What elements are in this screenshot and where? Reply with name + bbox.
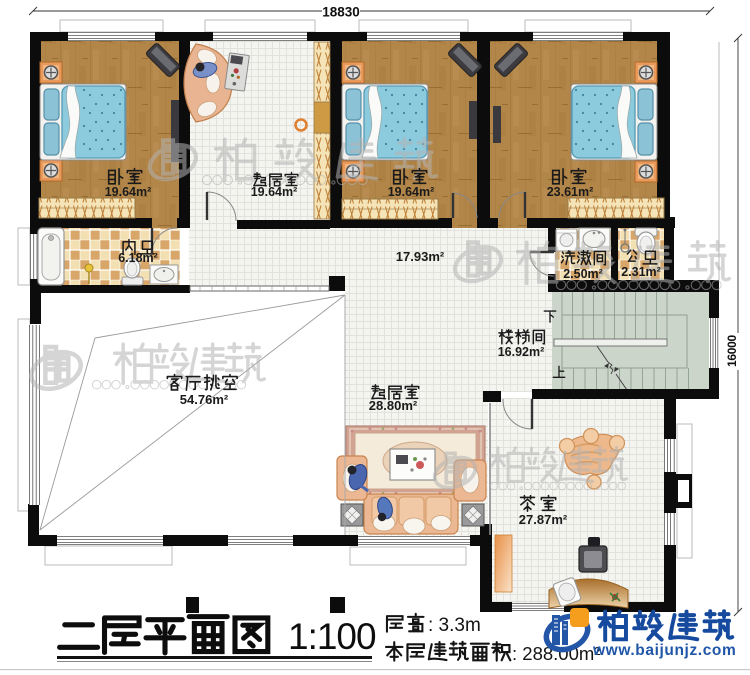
svg-text:16.92m²: 16.92m² [498,345,545,359]
svg-text:17.93m²: 17.93m² [396,249,445,264]
svg-text:19.64m²: 19.64m² [105,185,152,199]
svg-text:19.64m²: 19.64m² [388,185,435,199]
svg-text:www.baijunjz.com: www.baijunjz.com [592,642,736,659]
svg-text:28.80m²: 28.80m² [369,398,418,413]
svg-text:1:100: 1:100 [288,616,376,657]
svg-text:2.31m²: 2.31m² [621,265,661,279]
svg-text:27.87m²: 27.87m² [519,512,568,527]
svg-text:16000: 16000 [725,334,739,366]
svg-text:54.76m²: 54.76m² [180,392,229,407]
svg-text:23.61m²: 23.61m² [547,185,594,199]
svg-text:2.50m²: 2.50m² [563,267,603,281]
svg-text:: 3.3m: : 3.3m [428,615,481,636]
svg-text:18830: 18830 [322,5,360,20]
svg-text:6.18m²: 6.18m² [118,251,158,265]
svg-text:19.64m²: 19.64m² [251,185,298,199]
